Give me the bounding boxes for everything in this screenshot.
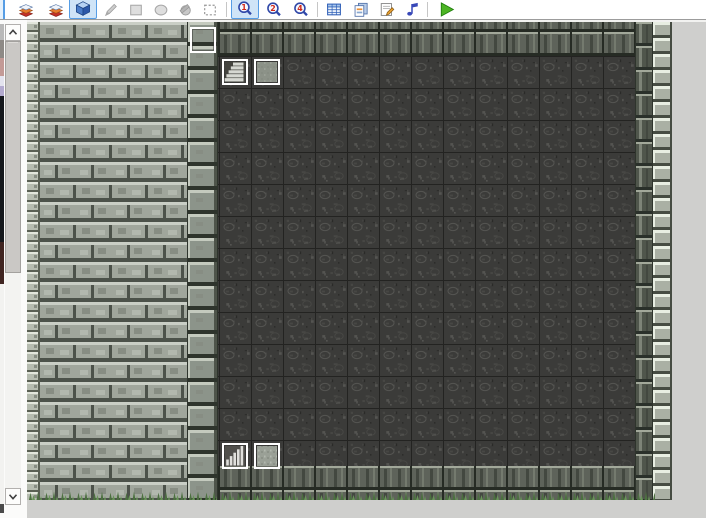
scrollbar-thumb[interactable]	[5, 41, 21, 273]
materials-icon	[353, 1, 370, 18]
flood-fill-icon	[177, 1, 194, 18]
scrollbar-up-button[interactable]	[5, 24, 21, 41]
zoom-1-1-icon: 1	[237, 0, 254, 17]
map-region-seam	[635, 22, 636, 500]
palette-tile-fragment	[0, 58, 4, 76]
map-region-seam	[652, 22, 653, 500]
zoom-1-2-icon: 2	[266, 1, 283, 18]
map-region-pillar-column	[188, 22, 218, 500]
playtest-icon	[439, 1, 456, 18]
toolbar-rectangle-button[interactable]	[124, 0, 148, 19]
svg-text:4: 4	[297, 4, 303, 13]
sound-test-icon	[404, 1, 421, 18]
database-icon	[326, 1, 343, 18]
toolbar-pencil-button[interactable]	[99, 0, 123, 19]
toolbar-playtest-button[interactable]	[433, 0, 461, 19]
palette-tile-fragment	[0, 76, 4, 86]
toolbar-zoom-1-1-button[interactable]: 1	[231, 0, 259, 19]
map-tiles	[27, 22, 672, 500]
map-event-tile-lower[interactable]	[255, 444, 279, 468]
map-event-stairs-upper[interactable]	[223, 60, 247, 84]
toolbar-separator	[317, 2, 318, 17]
palette-tile-fragment	[0, 40, 4, 58]
layer-3-icon	[48, 1, 65, 18]
palette-vertical-scrollbar[interactable]	[5, 24, 21, 505]
layer-2-icon	[18, 1, 35, 18]
zoom-1-4-icon: 4	[293, 1, 310, 18]
map-event-tile-upper[interactable]	[255, 60, 279, 84]
toolbar-sound-test-button[interactable]	[399, 0, 425, 19]
toolbar-layer-3-button[interactable]	[43, 0, 69, 19]
rectangle-icon	[128, 1, 145, 18]
map-region-top-wall-band	[218, 22, 636, 56]
toolbar-event-layer-button[interactable]	[69, 0, 97, 19]
map-region-stone-floor	[218, 56, 636, 466]
map-region-grass-fringe	[27, 486, 655, 500]
map-region-right-edge-bricks	[653, 22, 672, 500]
palette-tile-fragment	[0, 24, 4, 40]
map-region-right-dark-column	[636, 22, 653, 500]
toolbar-zoom-1-4-button[interactable]: 4	[288, 0, 314, 19]
toolbar-layer-1-partial-button[interactable]	[0, 0, 5, 19]
toolbar-materials-button[interactable]	[348, 0, 374, 19]
scrollbar-down-button[interactable]	[5, 488, 21, 505]
left-pane	[0, 20, 27, 518]
toolbar-layer-2-button[interactable]	[13, 0, 39, 19]
toolbar-flood-fill-button[interactable]	[173, 0, 197, 19]
map-region-left-edge-bricks	[27, 22, 40, 500]
toolbar-database-button[interactable]	[321, 0, 347, 19]
select-icon	[202, 1, 219, 18]
map-event-stairs-lower[interactable]	[223, 444, 247, 468]
pencil-icon	[103, 1, 120, 18]
toolbar: 1 2 4	[0, 0, 706, 20]
toolbar-script-editor-button[interactable]	[374, 0, 400, 19]
map-region-seam	[187, 22, 188, 500]
toolbar-ellipse-button[interactable]	[149, 0, 173, 19]
script-editor-icon	[379, 1, 396, 18]
palette-tile-fragment	[0, 284, 4, 504]
map-region-left-brick-wall	[40, 22, 188, 500]
palette-tile-fragment	[0, 504, 4, 513]
ellipse-icon	[153, 1, 170, 18]
toolbar-zoom-1-2-button[interactable]: 2	[261, 0, 287, 19]
map-canvas[interactable]	[27, 22, 672, 500]
toolbar-select-button[interactable]	[198, 0, 222, 19]
toolbar-separator	[427, 2, 428, 17]
palette-tile-fragment	[0, 86, 4, 96]
layer-1-partial-icon	[0, 1, 10, 18]
map-region-seam	[217, 22, 218, 500]
event-layer-icon	[75, 0, 92, 17]
map-editor-window: 1 2 4	[0, 0, 706, 518]
toolbar-separator	[226, 2, 227, 17]
svg-text:1: 1	[241, 3, 246, 12]
svg-text:2: 2	[270, 4, 275, 13]
palette-tile-fragment	[0, 242, 4, 284]
palette-tile-fragment	[0, 96, 4, 242]
